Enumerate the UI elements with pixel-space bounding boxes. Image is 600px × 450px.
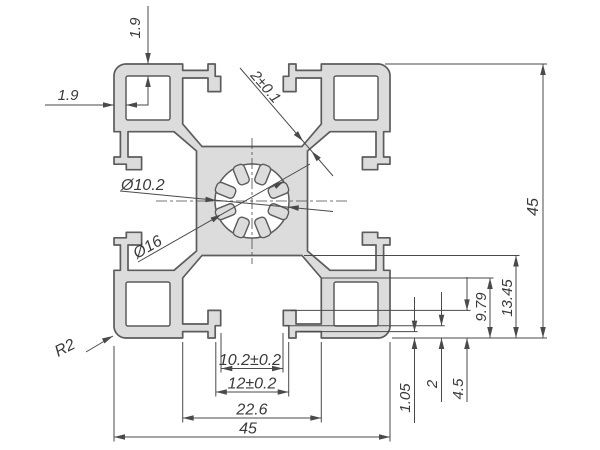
dim-profile-width: 45 — [239, 421, 257, 438]
technical-drawing-page: 1.9 1.9 2±0.1 Ø10.2 Ø16 R2 10.2±0.2 12±0… — [0, 0, 600, 450]
corner-cavity-top-right — [334, 76, 378, 120]
profile-body — [114, 64, 390, 338]
dim-hook-step: 2 — [424, 379, 441, 389]
dim-cavity-depth: 13.45 — [499, 279, 516, 317]
dim-slot-throat: 10.2±0.2 — [219, 352, 281, 369]
dim-wall-top: 1.9 — [127, 17, 144, 39]
extrusion-profile-drawing: 1.9 1.9 2±0.1 Ø10.2 Ø16 R2 10.2±0.2 12±0… — [0, 0, 600, 450]
dim-wall-left: 1.9 — [58, 87, 80, 104]
corner-cavity-bottom-right — [334, 282, 378, 326]
dim-profile-height: 45 — [525, 198, 542, 216]
dim-bore-small: Ø10.2 — [120, 177, 165, 194]
dim-web-thickness: 2±0.1 — [246, 67, 284, 107]
dim-lip-depth: 4.5 — [450, 378, 467, 400]
dim-slot-mouth: 12±0.2 — [228, 376, 277, 393]
dim-cavity-width: 22.6 — [235, 402, 267, 419]
dim-lines-right — [415, 64, 544, 423]
dim-cavity-shoulder: 9.79 — [473, 292, 490, 322]
dim-corner-radius: R2 — [52, 336, 78, 360]
corner-cavity-bottom-left — [126, 282, 170, 326]
dim-rib-depth: 1.05 — [397, 383, 414, 413]
